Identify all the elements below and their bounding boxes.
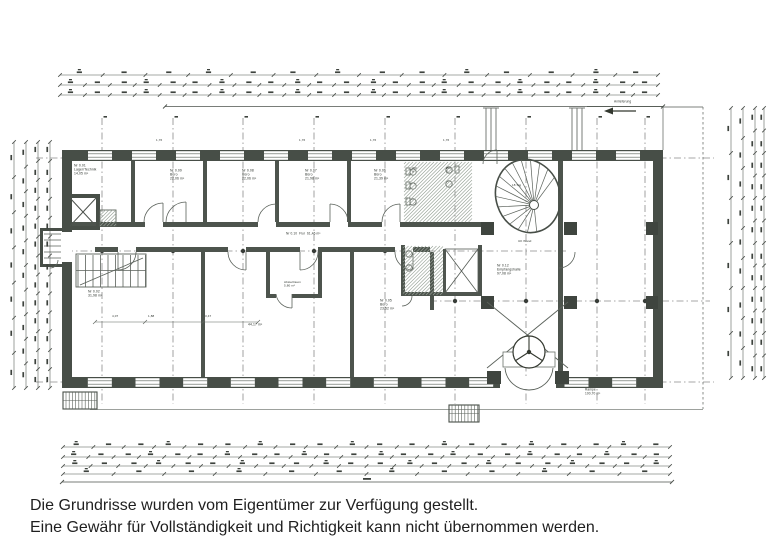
door-swings bbox=[50, 150, 575, 308]
scanned-floorplan-page: Nr 0.01 Lager/Technik 14,05 m²Nr 0.09 Bü… bbox=[0, 0, 768, 560]
external-stairs bbox=[63, 392, 479, 422]
disclaimer-text: Die Grundrisse wurden vom Eigentümer zur… bbox=[30, 495, 599, 538]
window-openings bbox=[88, 151, 640, 387]
floor-plan-drawing bbox=[0, 0, 768, 560]
upper-storey-projection-lines bbox=[483, 108, 585, 150]
delivery-arrow-icon bbox=[604, 108, 636, 115]
spiral-staircase bbox=[486, 151, 570, 241]
outer-walls bbox=[62, 150, 663, 388]
dimension-chains bbox=[10, 69, 765, 484]
interior-dimension-line bbox=[93, 320, 260, 324]
staircase-left bbox=[76, 254, 146, 287]
disclaimer-line2: Eine Gewähr für Vollständigkeit und Rich… bbox=[30, 517, 599, 539]
hatched-areas bbox=[100, 162, 472, 295]
disclaimer-line1: Die Grundrisse wurden vom Eigentümer zur… bbox=[30, 495, 599, 517]
left-bay bbox=[40, 228, 72, 267]
